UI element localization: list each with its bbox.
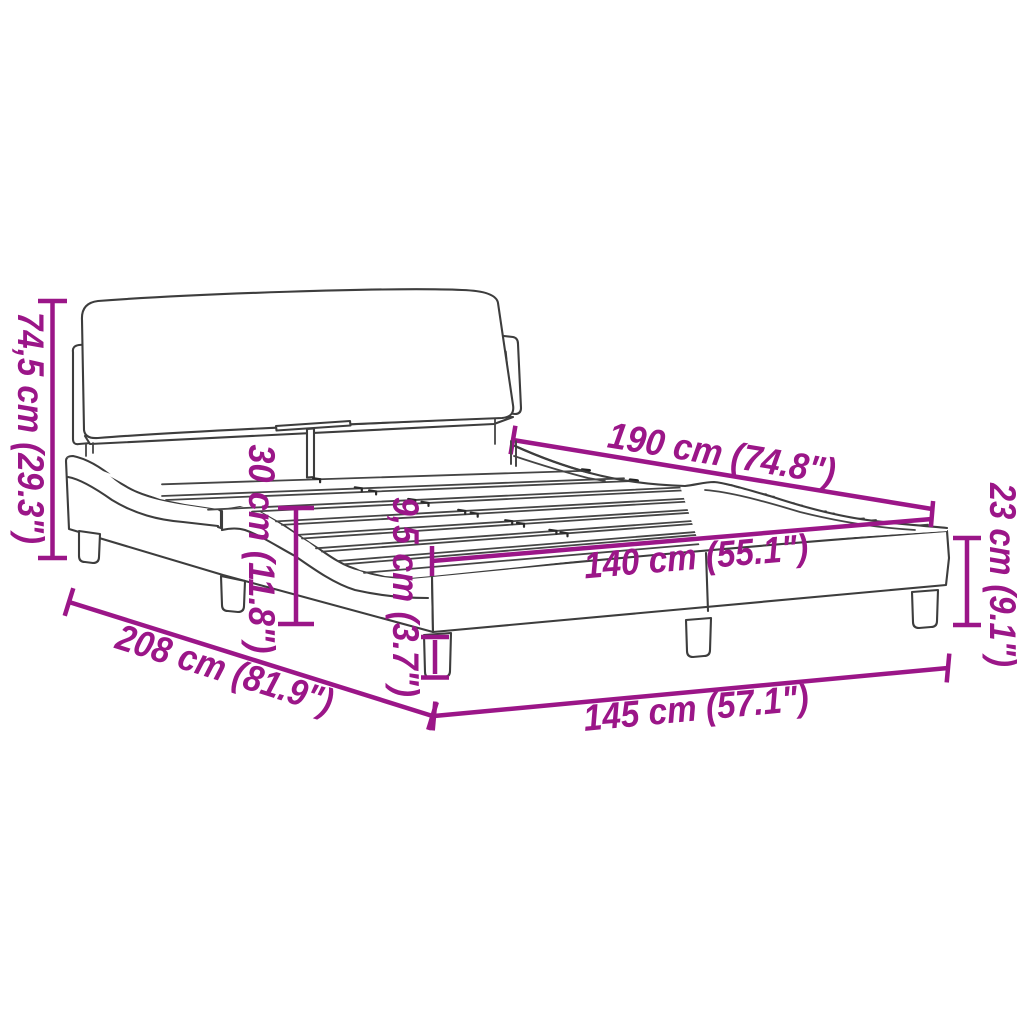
svg-text:23 cm (9.1"): 23 cm (9.1") — [982, 482, 1023, 667]
svg-text:9,5 cm (3.7"): 9,5 cm (3.7") — [385, 497, 426, 697]
svg-text:30 cm (11.8"): 30 cm (11.8") — [241, 445, 282, 654]
svg-text:74,5 cm (29.3"): 74,5 cm (29.3") — [10, 312, 51, 544]
